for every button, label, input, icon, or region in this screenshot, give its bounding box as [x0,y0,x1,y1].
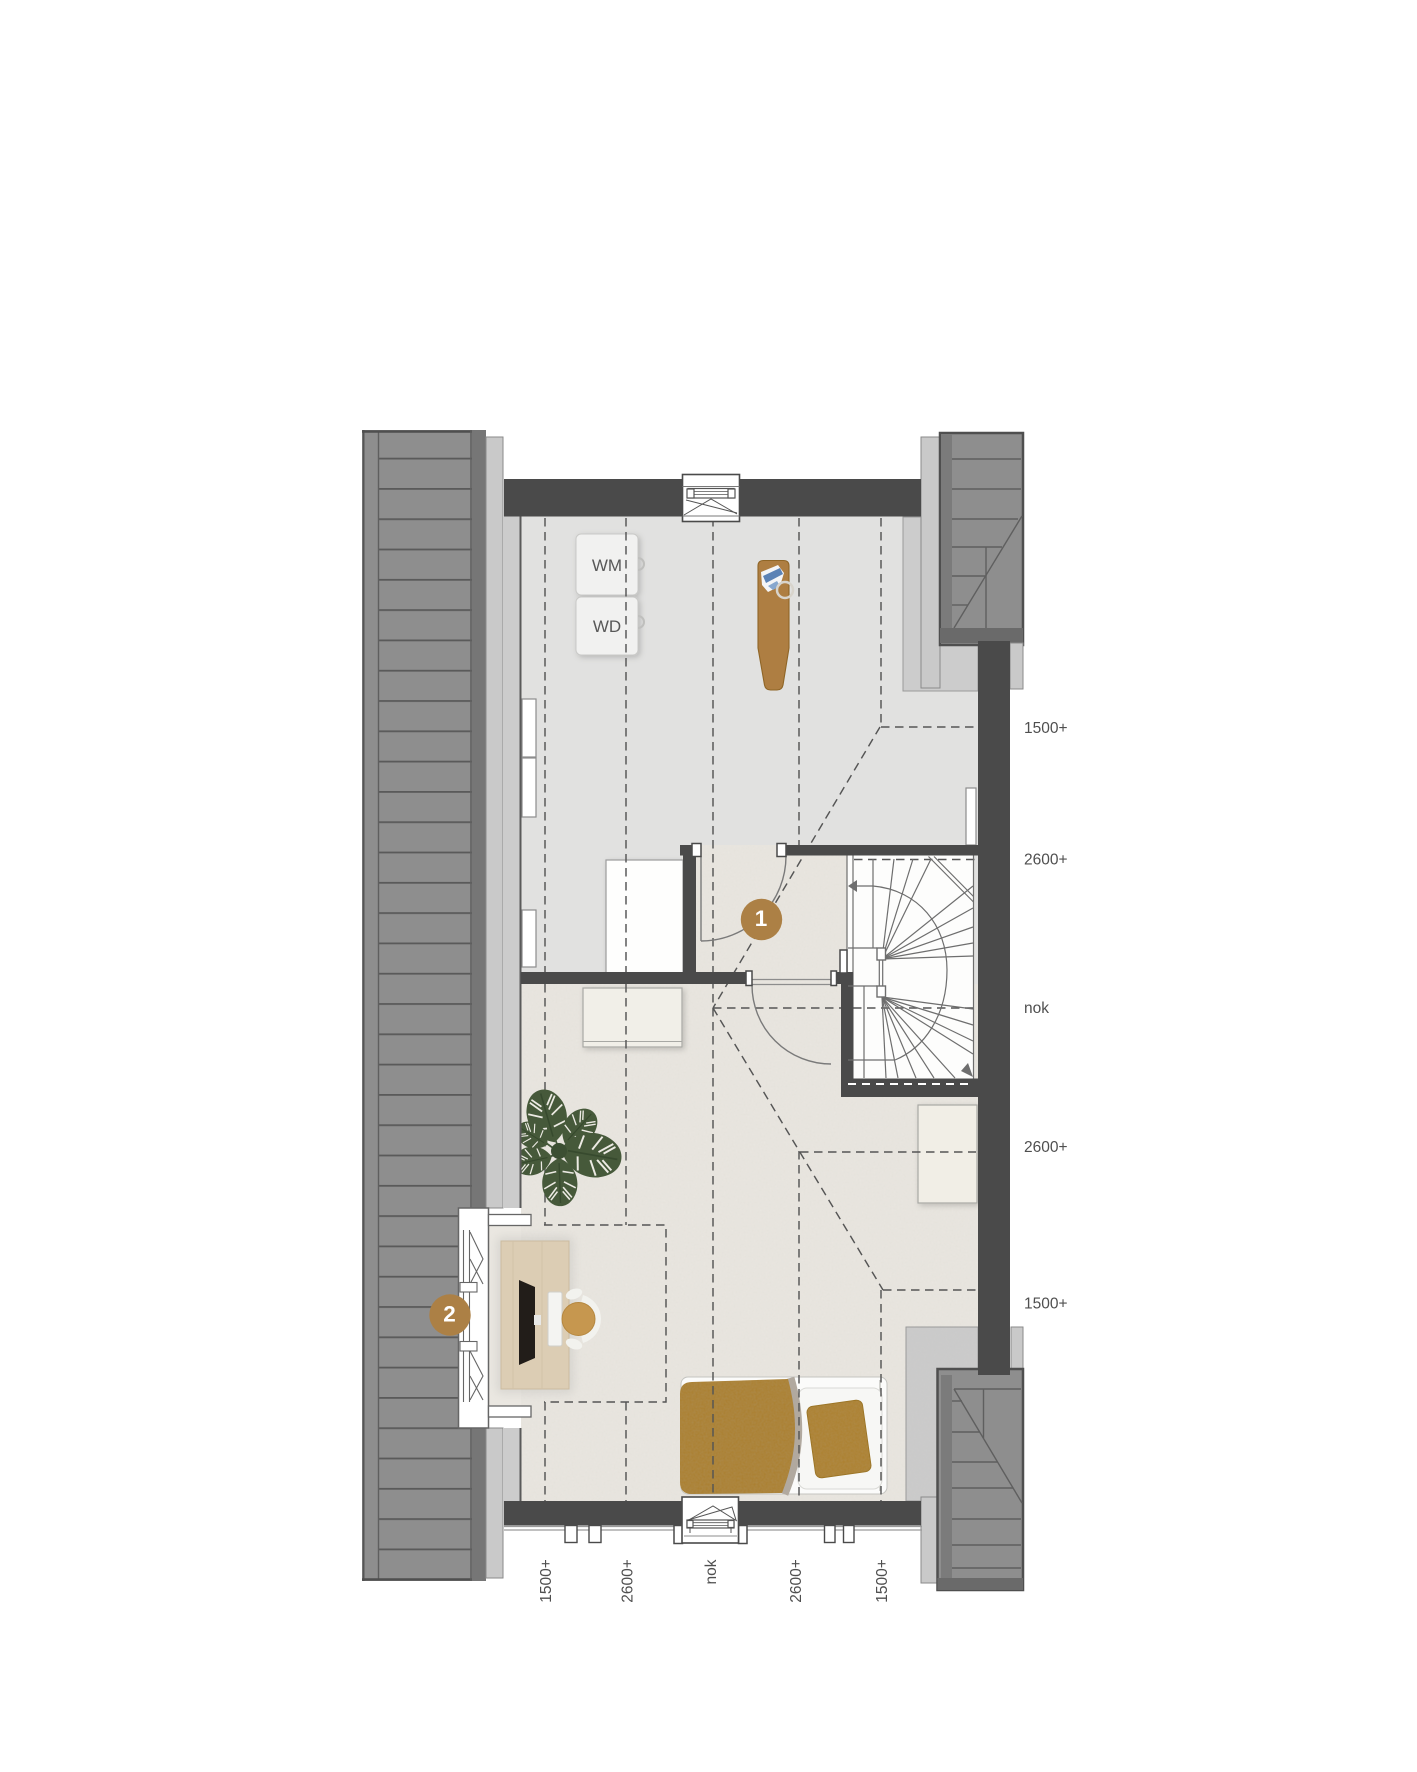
svg-text:1500+: 1500+ [874,1559,891,1603]
svg-text:2600+: 2600+ [788,1559,805,1603]
svg-text:nok: nok [703,1559,720,1584]
svg-text:WM: WM [592,556,622,575]
svg-text:2600+: 2600+ [620,1559,637,1603]
svg-text:1500+: 1500+ [1024,1296,1068,1313]
svg-text:WD: WD [593,617,621,636]
svg-text:2: 2 [443,1302,456,1327]
svg-text:1500+: 1500+ [538,1559,555,1603]
svg-text:1: 1 [755,906,768,931]
svg-text:2600+: 2600+ [1024,1139,1068,1156]
svg-text:1500+: 1500+ [1024,720,1068,737]
svg-text:2600+: 2600+ [1024,852,1068,869]
svg-text:nok: nok [1024,1000,1049,1017]
